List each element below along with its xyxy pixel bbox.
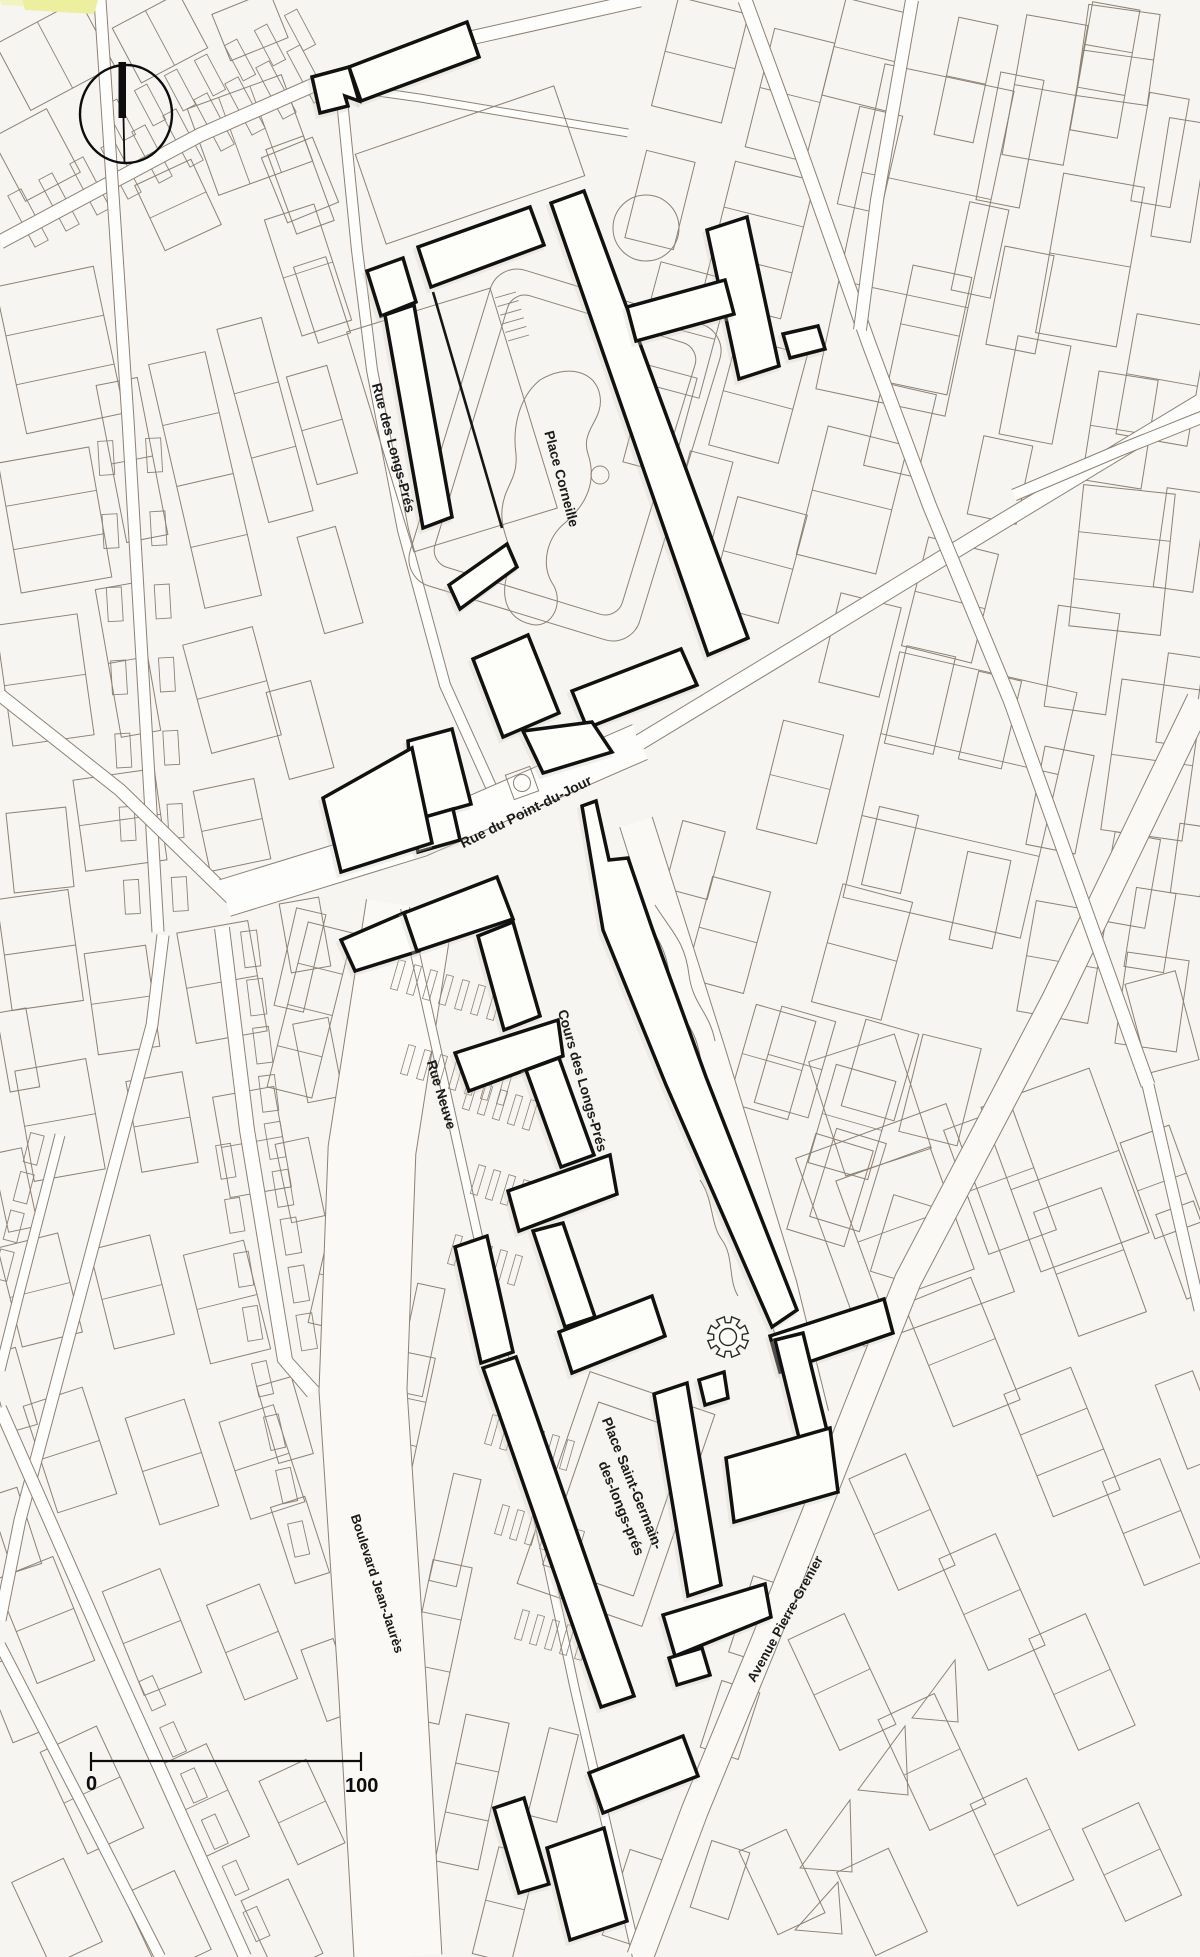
svg-text:0: 0 — [86, 1773, 97, 1795]
svg-text:100: 100 — [345, 1775, 378, 1797]
